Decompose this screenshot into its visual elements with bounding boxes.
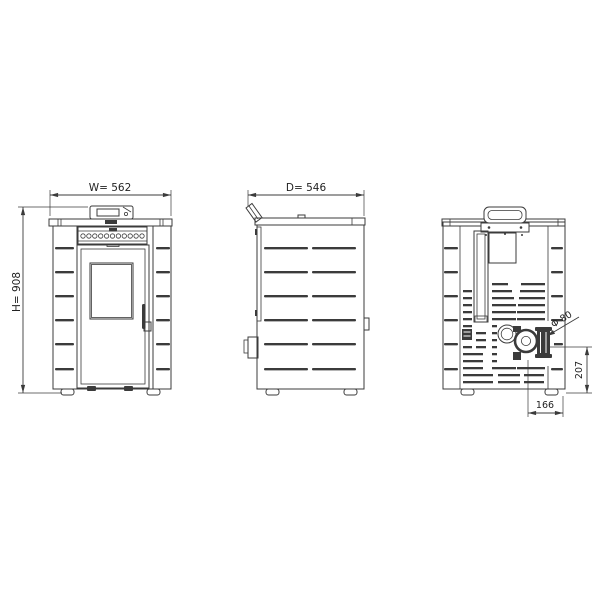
back-view: Φ 80 207 166 [442,207,592,417]
front-width-label: W= 562 [89,182,132,194]
stove-three-view-drawing: W= 562 H= 908 [0,0,610,610]
side-ash-box [244,337,258,358]
side-vent-slots [264,247,356,370]
fire-door [77,245,151,391]
display-screen [97,209,119,216]
side-view: D= 546 [244,182,369,395]
front-top-plate [49,219,172,226]
side-depth-dimension: D= 546 [248,182,364,216]
junction-box [489,233,516,263]
back-feet [461,389,558,395]
door-edge [255,227,261,321]
side-body [244,225,369,389]
technical-drawing-canvas: W= 562 H= 908 [0,0,610,610]
front-width-dimension: W= 562 [50,182,171,216]
grille-holes [81,234,144,238]
flue-offset-label: 166 [536,400,554,411]
front-height-dimension: H= 908 [11,207,88,393]
side-depth-label: D= 546 [286,182,327,194]
front-left-side-panel [53,226,77,389]
cable-channel [474,231,488,322]
front-view: W= 562 H= 908 [11,182,172,395]
door-handle [142,304,151,331]
front-feet [53,389,171,395]
flue-pipe [537,329,550,357]
front-height-label: H= 908 [11,272,23,312]
door-window [90,263,133,319]
hopper-lid [246,204,262,223]
control-panel [90,206,133,219]
power-socket [462,329,472,340]
flue-outlet [497,321,554,366]
side-feet [266,389,357,395]
side-top-plate [255,215,365,225]
rear-bracket [364,318,369,330]
air-grille [78,227,147,247]
front-right-side-panel [153,226,171,389]
flue-height-label: 207 [574,361,585,379]
